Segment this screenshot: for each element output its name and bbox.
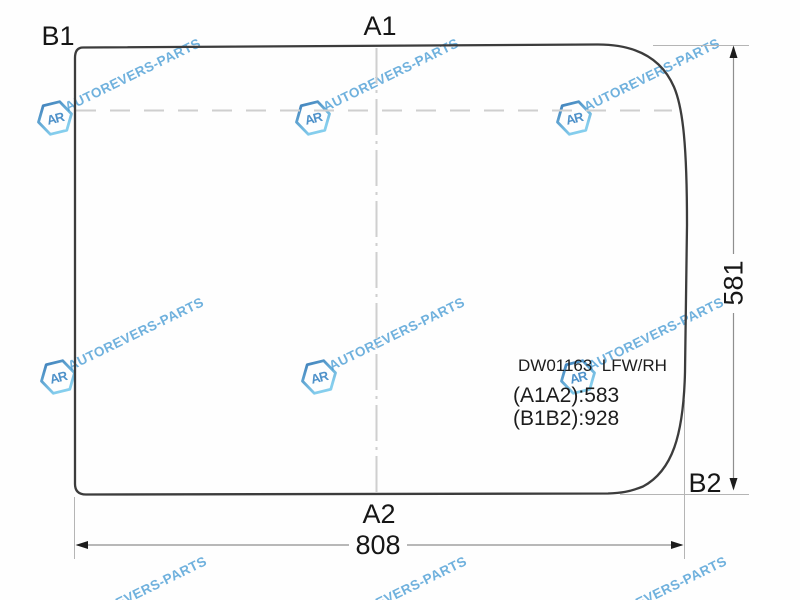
arrow-up-icon bbox=[730, 46, 738, 59]
arrow-left-icon bbox=[76, 541, 89, 549]
arrow-down-icon bbox=[730, 478, 738, 491]
measurement-b1b2: (B1B2):928 bbox=[513, 408, 619, 429]
label-b2: B2 bbox=[688, 470, 721, 497]
glass-drawing bbox=[0, 0, 800, 600]
arrow-right-icon bbox=[671, 541, 684, 549]
label-a2: A2 bbox=[362, 501, 395, 528]
label-a1: A1 bbox=[363, 13, 396, 40]
diagram-canvas: AR AUTOREVERS-PARTS AR AUTOREVERS-PARTS … bbox=[0, 0, 800, 600]
width-dimension-value: 808 bbox=[355, 532, 400, 559]
label-b1: B1 bbox=[41, 23, 74, 50]
height-dimension-value: 581 bbox=[721, 260, 748, 305]
part-number: DW01163 LFW/RH bbox=[518, 357, 667, 374]
measurement-a1a2: (A1A2):583 bbox=[513, 385, 619, 406]
